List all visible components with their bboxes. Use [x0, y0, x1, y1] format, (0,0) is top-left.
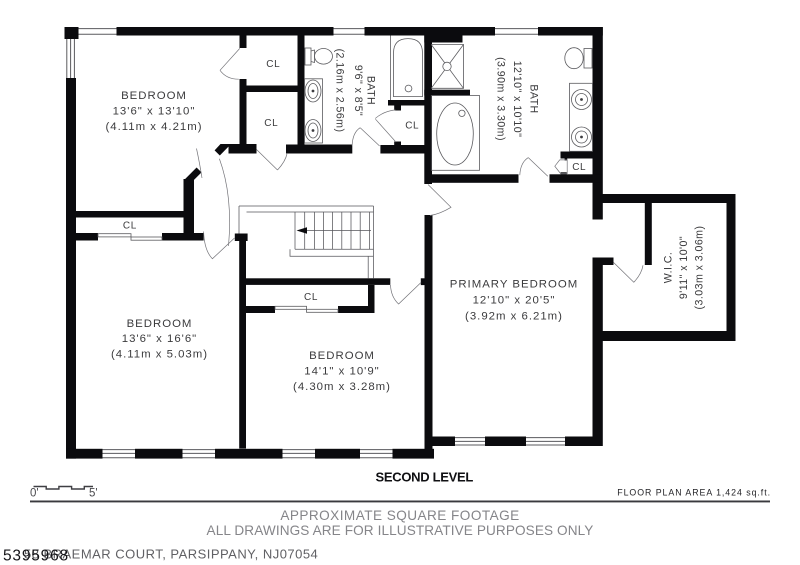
- svg-text:(3.03m x 3.06m): (3.03m x 3.06m): [693, 226, 705, 310]
- svg-text:BATH: BATH: [365, 76, 377, 105]
- svg-text:CL: CL: [264, 118, 278, 129]
- svg-text:13'6" x 13'10": 13'6" x 13'10": [113, 106, 196, 118]
- svg-text:SECOND LEVEL: SECOND LEVEL: [376, 470, 474, 485]
- svg-text:(4.11m x 4.21m): (4.11m x 4.21m): [105, 121, 202, 133]
- svg-text:CL: CL: [405, 121, 419, 132]
- svg-text:12'10" x 20'5": 12'10" x 20'5": [473, 295, 556, 307]
- svg-text:(2.16m x 2.56m): (2.16m x 2.56m): [334, 49, 346, 133]
- svg-text:BATH: BATH: [528, 84, 540, 113]
- svg-text:12'10" x 10'10": 12'10" x 10'10": [511, 61, 523, 138]
- svg-text:0': 0': [30, 487, 39, 499]
- svg-text:(3.90m x 3.30m): (3.90m x 3.30m): [495, 57, 507, 141]
- svg-text:9'11" x 10'0": 9'11" x 10'0": [678, 236, 690, 299]
- svg-text:14'1" x 10'9": 14'1" x 10'9": [304, 366, 379, 378]
- svg-text:ALL DRAWINGS ARE FOR ILLUSTRAT: ALL DRAWINGS ARE FOR ILLUSTRATIVE PURPOS…: [207, 523, 594, 538]
- svg-text:(4.30m x 3.28m): (4.30m x 3.28m): [293, 381, 391, 393]
- svg-text:5395968: 5395968: [3, 548, 69, 565]
- svg-text:PRIMARY BEDROOM: PRIMARY BEDROOM: [450, 279, 579, 291]
- svg-text:BEDROOM: BEDROOM: [121, 90, 187, 102]
- svg-text:13'6" x 16'6": 13'6" x 16'6": [122, 333, 197, 345]
- svg-text:BEDROOM: BEDROOM: [309, 350, 375, 362]
- svg-text:5': 5': [89, 487, 98, 499]
- svg-text:CL: CL: [266, 59, 280, 70]
- svg-text:(4.11m x 5.03m): (4.11m x 5.03m): [111, 349, 208, 361]
- svg-text:W.I.C.: W.I.C.: [662, 252, 674, 284]
- svg-text:(3.92m x 6.21m): (3.92m x 6.21m): [465, 311, 563, 323]
- svg-text:FLOOR PLAN AREA 1,424 sq.ft.: FLOOR PLAN AREA 1,424 sq.ft.: [617, 487, 771, 497]
- svg-text:CL: CL: [304, 292, 318, 303]
- svg-text:CL: CL: [123, 221, 137, 232]
- svg-text:CL: CL: [572, 162, 586, 173]
- svg-text:APPROXIMATE SQUARE FOOTAGE: APPROXIMATE SQUARE FOOTAGE: [280, 508, 519, 523]
- svg-text:BEDROOM: BEDROOM: [127, 318, 193, 330]
- svg-text:9'6" x 8'5": 9'6" x 8'5": [352, 65, 364, 116]
